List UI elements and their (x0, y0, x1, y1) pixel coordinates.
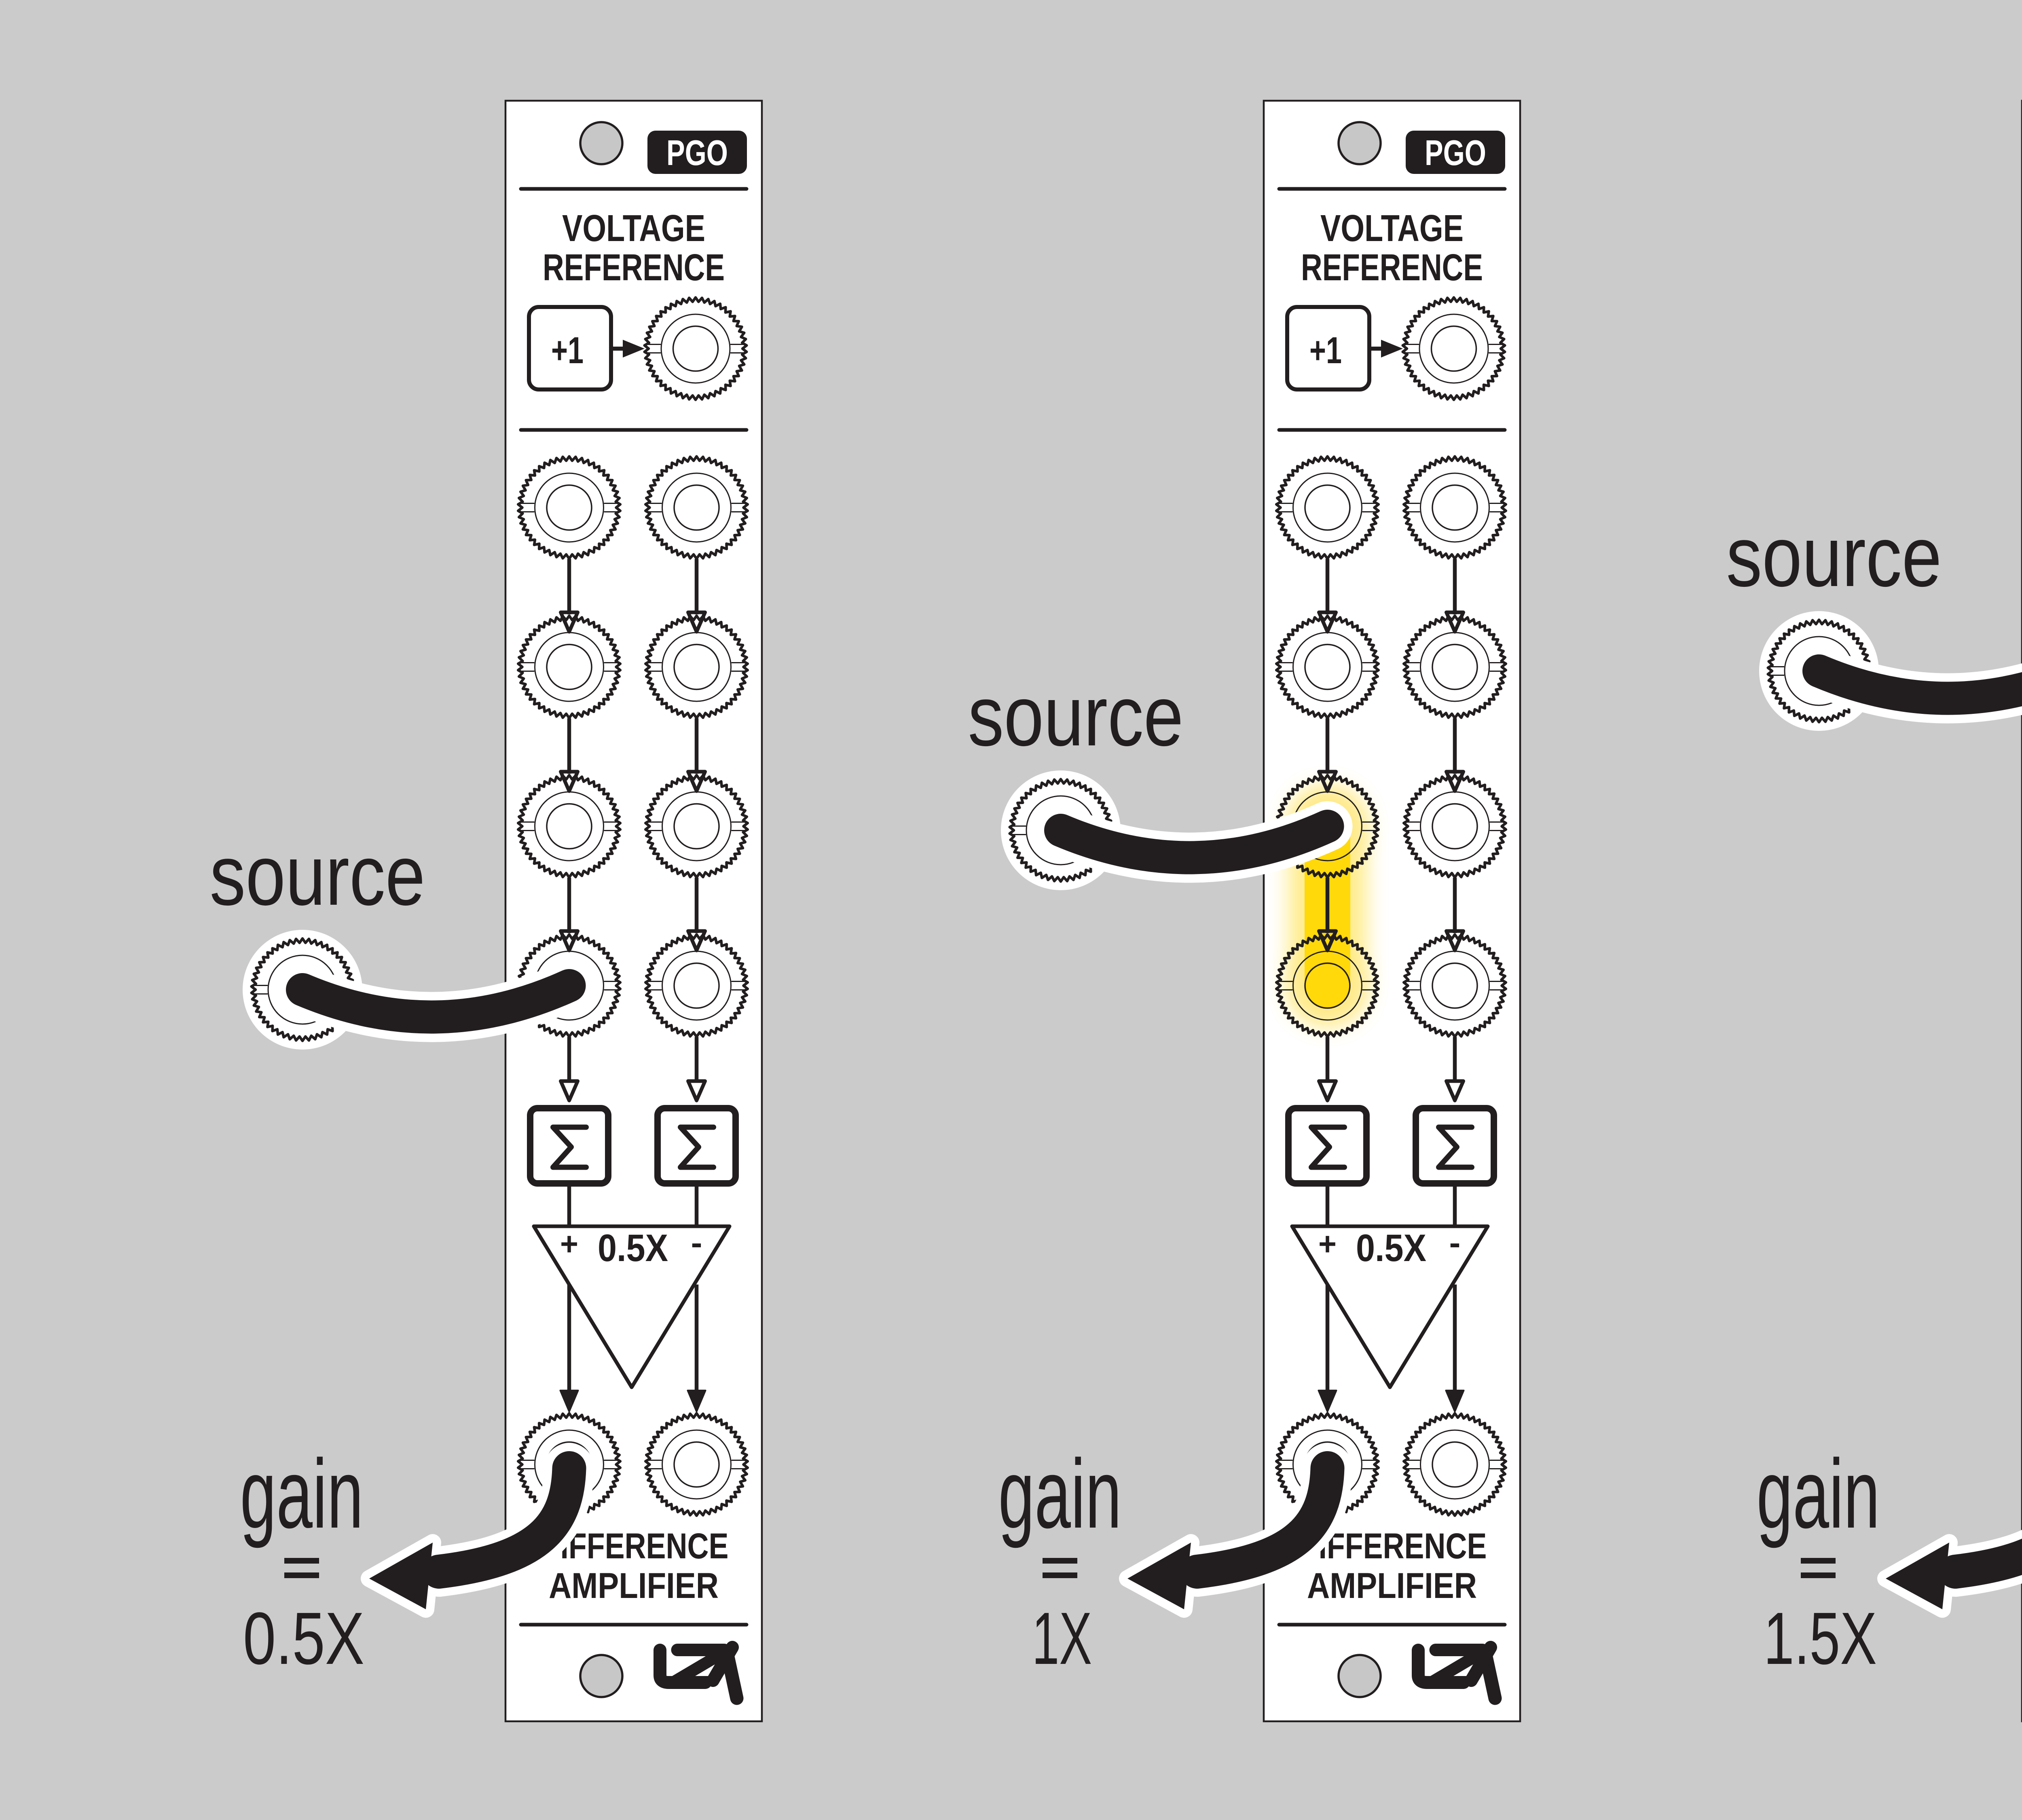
svg-text:source: source (1726, 508, 1942, 604)
svg-text:1X: 1X (1032, 1597, 1092, 1680)
svg-text:0.5X: 0.5X (243, 1597, 364, 1680)
svg-text:VOLTAGE: VOLTAGE (1320, 207, 1464, 249)
svg-text:PGO: PGO (666, 133, 728, 173)
svg-text:-: - (691, 1225, 702, 1261)
svg-text:gain: gain (1757, 1439, 1880, 1549)
svg-text:AMPLIFIER: AMPLIFIER (1307, 1565, 1477, 1606)
svg-text:gain: gain (998, 1439, 1122, 1549)
svg-text:+1: +1 (551, 329, 584, 371)
svg-text:source: source (968, 668, 1184, 764)
svg-text:AMPLIFIER: AMPLIFIER (549, 1565, 719, 1606)
svg-text:+: + (1318, 1226, 1337, 1262)
svg-text:+1: +1 (1309, 329, 1342, 371)
svg-text:gain: gain (240, 1439, 364, 1549)
svg-text:0.5X: 0.5X (1356, 1227, 1426, 1270)
svg-text:0.5X: 0.5X (598, 1227, 668, 1270)
svg-text:1.5X: 1.5X (1764, 1597, 1877, 1680)
svg-text:+: + (560, 1226, 578, 1262)
svg-text:source: source (210, 827, 425, 923)
svg-text:VOLTAGE: VOLTAGE (562, 207, 705, 249)
svg-text:REFERENCE: REFERENCE (543, 246, 725, 288)
svg-text:-: - (1449, 1225, 1461, 1261)
svg-text:REFERENCE: REFERENCE (1301, 246, 1483, 288)
svg-text:PGO: PGO (1425, 133, 1486, 173)
